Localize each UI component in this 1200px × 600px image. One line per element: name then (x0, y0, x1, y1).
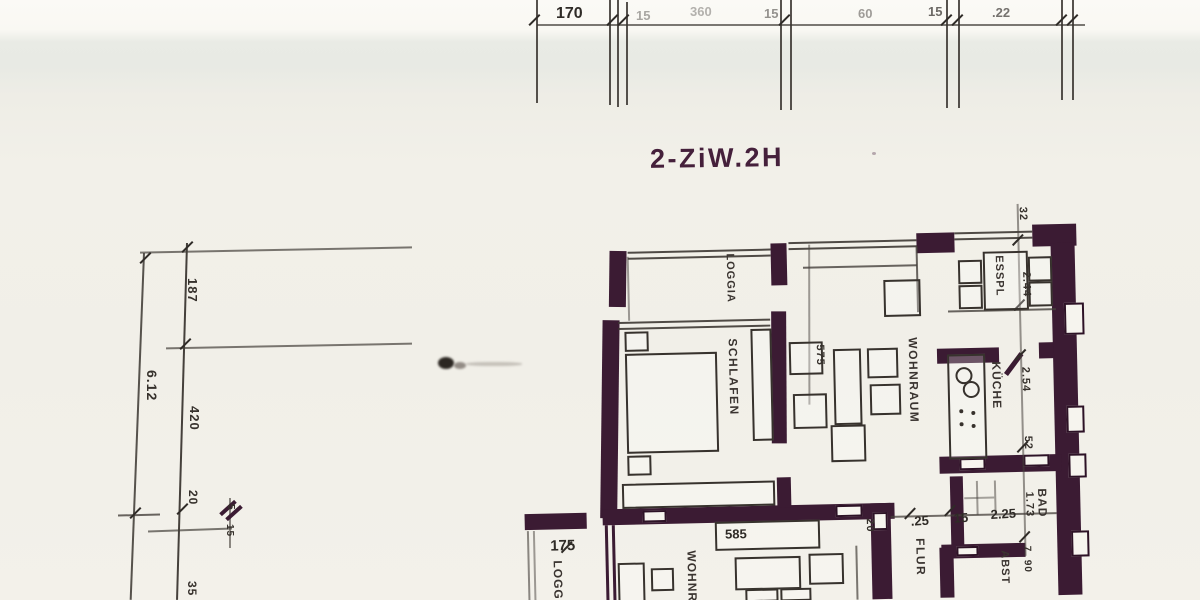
stove-burner (971, 411, 975, 415)
door-sill (1023, 454, 1049, 467)
room-label-esspl: ESSPL (993, 255, 1006, 296)
room-label-bad: BAD (1035, 488, 1050, 517)
wall (939, 547, 954, 597)
room-label-loggia2: LOGGIA (551, 560, 566, 600)
chair (958, 285, 983, 310)
floorplan-scan: 170 15 360 15 60 15 .22 2-ZiW.2H 187 420… (0, 0, 1200, 600)
window-sill (1071, 530, 1090, 556)
pencil-line (533, 531, 536, 600)
wall (916, 232, 954, 253)
armchair (745, 588, 778, 600)
dim-254: 2.54 (1019, 367, 1032, 393)
table (651, 568, 675, 592)
dim-225: 2.25 (990, 506, 1016, 522)
dim-52: 52 (1022, 436, 1034, 451)
room-label-schlafen: SCHLAFEN (726, 338, 742, 416)
wall (1039, 342, 1054, 358)
room-label-wohnraum: WOHNRAUM (906, 337, 922, 423)
pencil-line (808, 245, 810, 405)
armchair (870, 384, 902, 416)
wardrobe (750, 329, 774, 441)
bed (625, 352, 719, 454)
dim-32: 32 (1017, 207, 1029, 222)
room-label-abst: ABST (998, 550, 1011, 584)
door-sill (642, 510, 666, 523)
nightstand (624, 331, 648, 352)
door-sill (835, 505, 862, 518)
armchair (867, 348, 899, 379)
armchair (808, 553, 844, 585)
bad-fixture-line (964, 497, 994, 499)
wall (770, 243, 787, 285)
dim-173: 1.73 (1023, 492, 1036, 518)
dim-15: 15 (953, 510, 968, 526)
loggia-railing (628, 249, 771, 260)
room-label-flur: FLUR (913, 538, 928, 576)
window-jamb (605, 525, 610, 600)
sideboard (622, 480, 776, 508)
window-sill (1068, 453, 1087, 477)
room-label-loggia: LOGGIA (724, 253, 737, 303)
dim-7: 7 (1021, 546, 1032, 553)
wall (777, 477, 792, 507)
dim-20: 20 (864, 518, 876, 533)
door-sill (956, 546, 978, 556)
stove-burner (972, 424, 976, 428)
wall (609, 251, 627, 307)
nightstand (627, 455, 651, 476)
dim-585: 585 (725, 526, 747, 541)
armchair (831, 424, 867, 462)
wall (525, 513, 587, 530)
stove-burner (960, 422, 964, 426)
floorplan: LOGGIA SCHLAFEN WOHNRAUM ESSPL KÜCHE BAD… (0, 0, 1200, 600)
chair (958, 260, 983, 285)
dim-575: 575 (814, 344, 826, 366)
stove-burner (959, 409, 963, 413)
door-panel (618, 562, 646, 600)
window-jamb (612, 525, 617, 600)
coffee-table (833, 349, 863, 426)
window-sill (1066, 405, 1085, 432)
armchair (793, 393, 828, 429)
armchair (780, 588, 811, 600)
pencil-line (855, 546, 858, 600)
pencil-line (527, 531, 530, 600)
dim-175: 175 (550, 537, 575, 555)
table (883, 279, 921, 317)
dim-90: 90 (1022, 560, 1033, 573)
pencil-line (627, 257, 630, 321)
room-label-kueche: KÜCHE (989, 361, 1004, 409)
couch (735, 556, 802, 590)
wall (600, 320, 619, 518)
wall (941, 543, 1025, 559)
window-band (618, 319, 770, 330)
window-sill (1064, 302, 1085, 334)
dim-25: .25 (910, 513, 929, 529)
room-label-wohnr: WOHNR (684, 550, 699, 600)
door-sill (959, 458, 985, 471)
pencil-line (803, 264, 917, 269)
dim-244: 2.44 (1020, 272, 1033, 298)
